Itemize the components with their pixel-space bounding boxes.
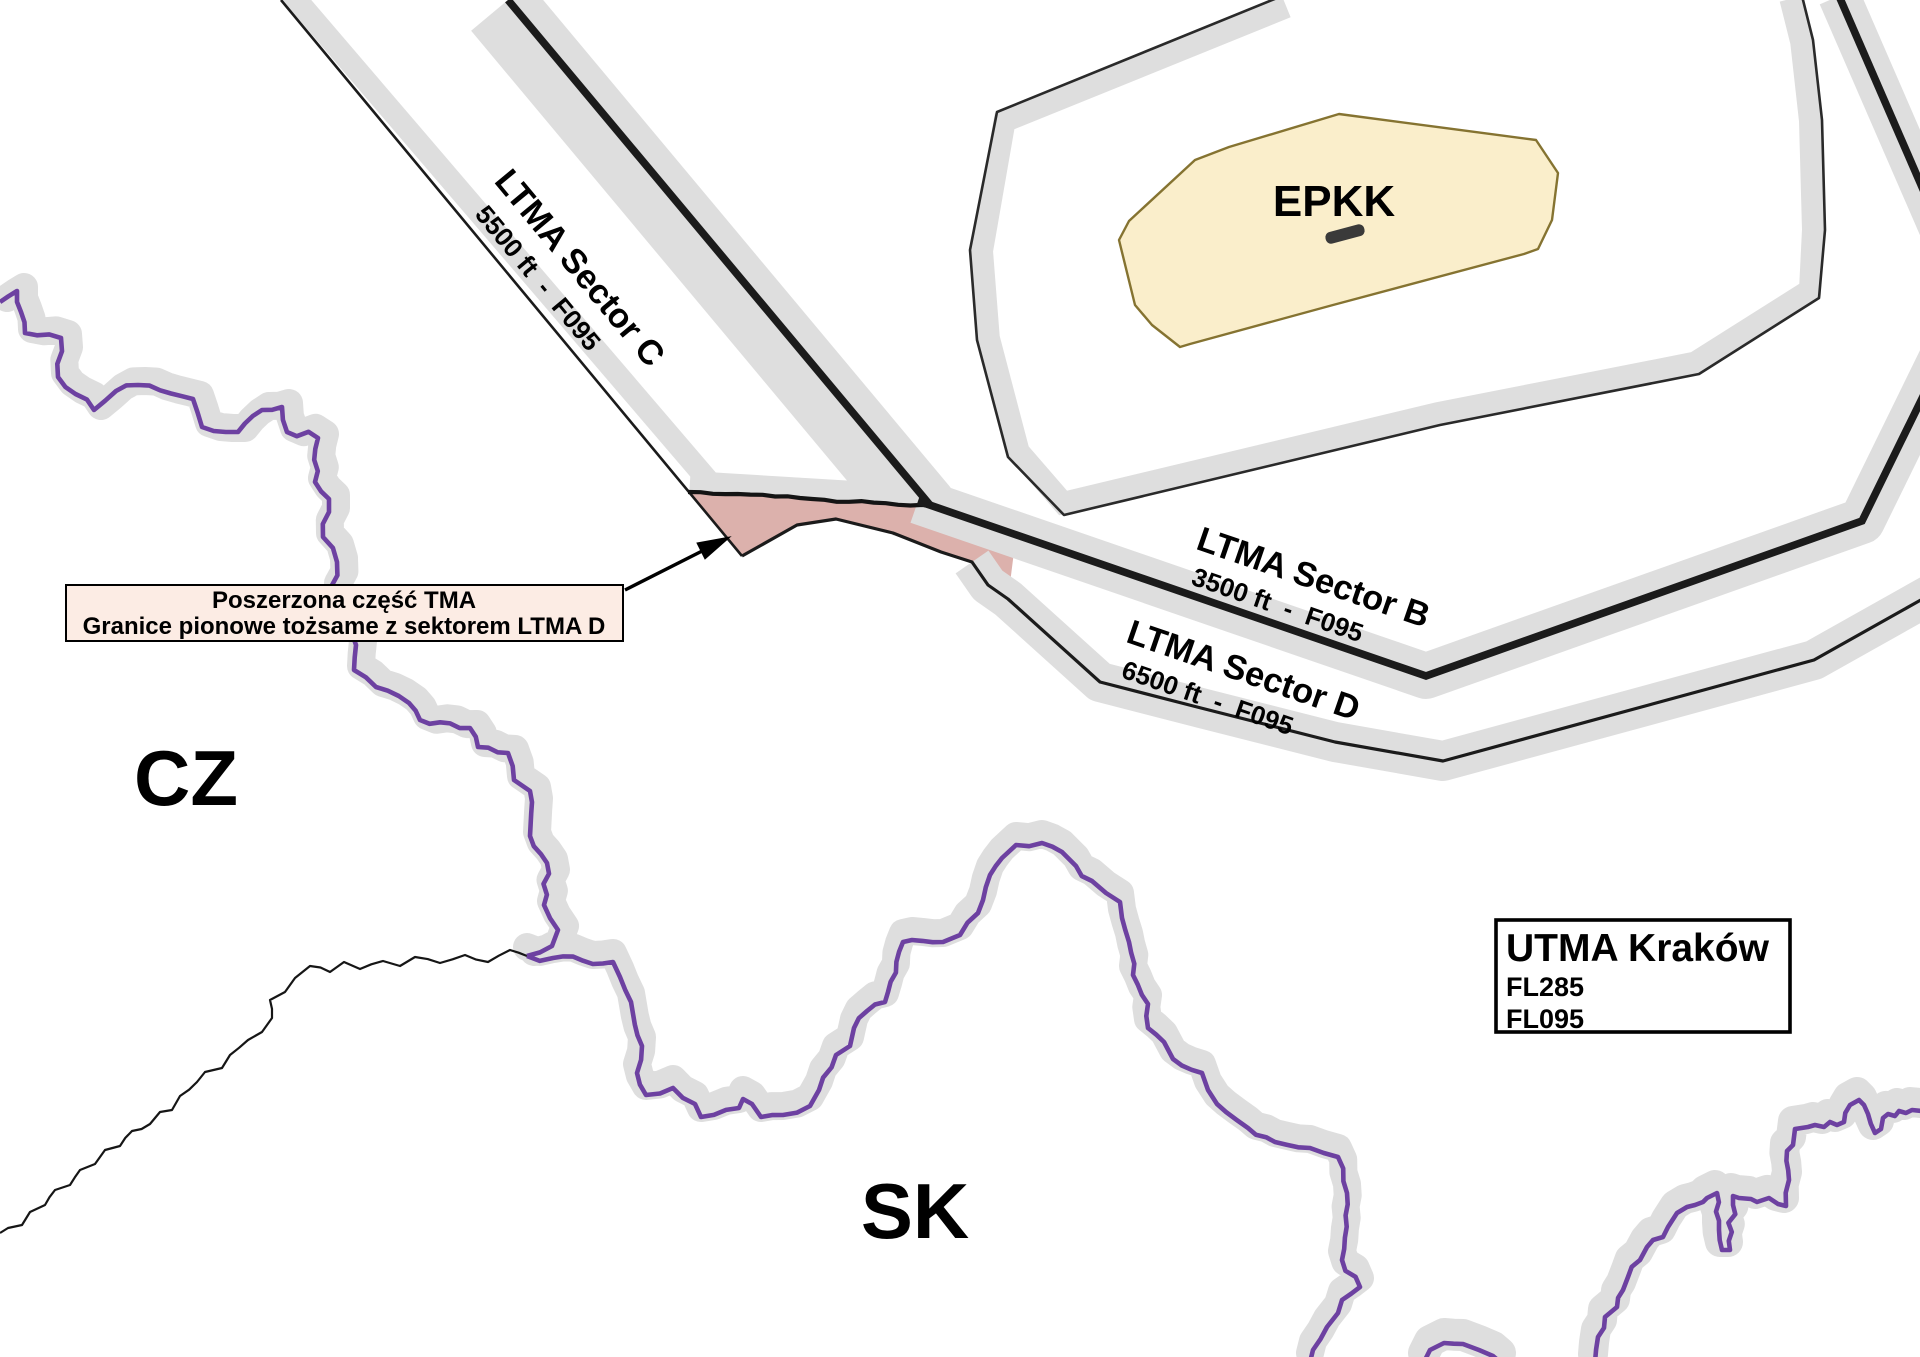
svg-text:FL095: FL095 <box>1506 1004 1584 1034</box>
svg-text:EPKK: EPKK <box>1273 177 1395 226</box>
svg-text:CZ: CZ <box>134 734 238 822</box>
svg-text:Poszerzona część TMA: Poszerzona część TMA <box>212 587 476 614</box>
svg-text:Granice pionowe tożsame z sekt: Granice pionowe tożsame z sektorem LTMA … <box>83 613 606 640</box>
svg-text:FL285: FL285 <box>1506 972 1584 1002</box>
svg-text:SK: SK <box>861 1167 969 1255</box>
svg-text:UTMA Kraków: UTMA Kraków <box>1506 927 1770 970</box>
